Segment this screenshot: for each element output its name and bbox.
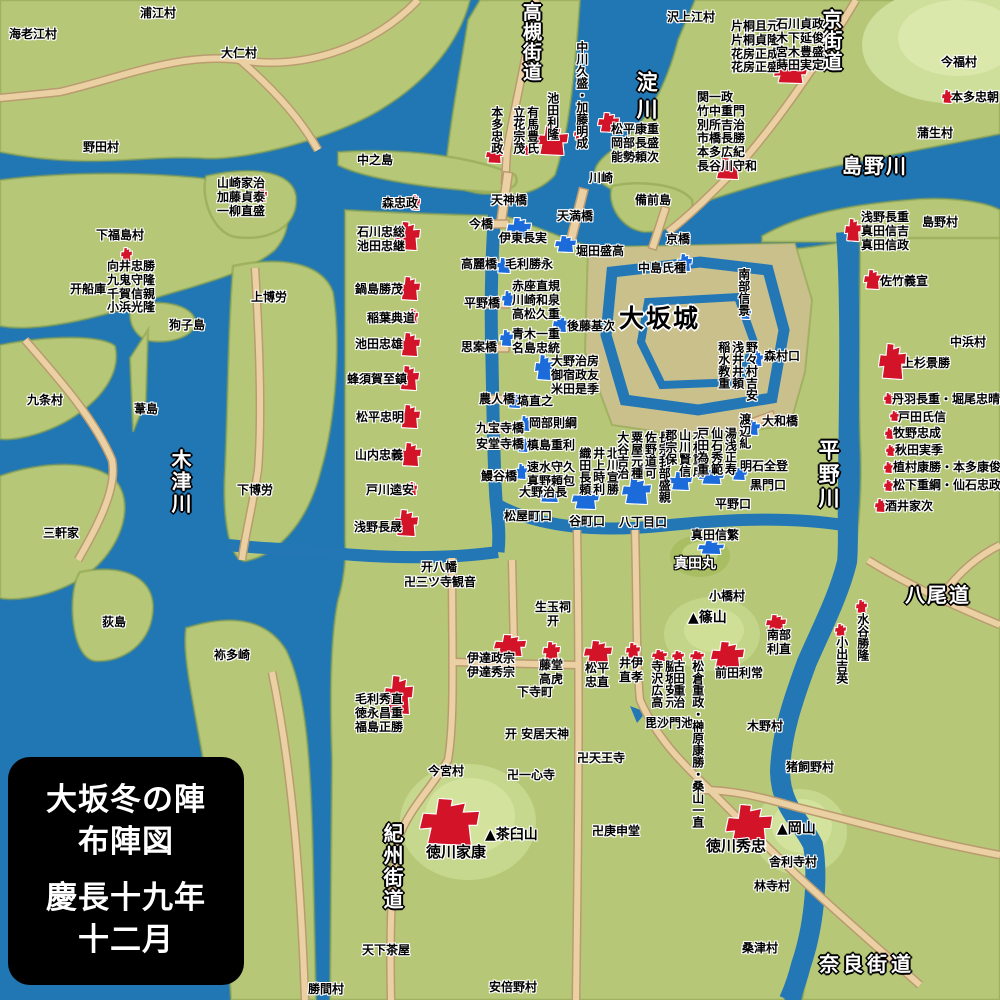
east-camp-label: 蜂須賀至鎮	[347, 373, 407, 387]
west-camp-label: 真田信繁	[691, 529, 739, 543]
landmark-label: ▲岡山	[777, 821, 816, 837]
route-or-river-label: 紀州街道	[380, 823, 403, 911]
east-camp-label: 石川貞政木下延俊宮木豊盛蒔田実定	[776, 18, 824, 73]
village-label: 葦島	[134, 403, 158, 417]
landmark-label: 卍天王寺	[577, 752, 625, 766]
bridge-label: 鰻谷橋	[481, 470, 517, 484]
village-label: 木野村	[747, 720, 783, 734]
west-camp-label: 堀田盛高	[576, 245, 624, 259]
bridge-label: 今橋	[469, 218, 493, 232]
landmark-label: ▲茶臼山	[485, 827, 538, 843]
east-camp-label: 松下重綱・仙石忠政	[893, 479, 1000, 493]
route-or-river-label: 島野川	[842, 155, 908, 178]
east-camp-marker	[420, 799, 479, 845]
village-label: 猪飼野村	[786, 761, 834, 775]
east-camp-label: 片桐且元片桐貞隆花房正成花房正盛	[731, 20, 779, 75]
east-camp-label: 有馬豊氏立花宗茂	[511, 106, 539, 154]
east-camp-marker-shape	[864, 270, 881, 289]
west-camp-label: 南部信景	[736, 268, 750, 316]
east-camp-marker	[884, 480, 893, 491]
osaka-castle	[585, 243, 812, 438]
west-camp-marker	[698, 541, 724, 554]
east-camp-label: 稲葉典道	[367, 312, 415, 326]
east-camp-label: 毛利秀直徳永昌重福島正勝	[355, 693, 403, 734]
east-camp-marker-shape	[420, 799, 479, 845]
route-or-river-label: 八尾道	[905, 584, 971, 607]
east-camp-label: 酒井家次	[885, 500, 933, 514]
east-camp-marker-shape	[884, 480, 893, 491]
east-camp-marker	[864, 270, 881, 289]
gate-label: 谷町口	[569, 515, 605, 529]
village-label: 備前島	[635, 194, 671, 208]
east-camp-label: 山崎家治加藤貞泰一柳直盛	[217, 177, 265, 218]
west-camp-label: 槙島重利	[527, 439, 575, 453]
east-camp-marker	[400, 443, 421, 466]
east-camp-label: 徳川秀忠	[706, 838, 766, 855]
bridge-label: 天神橋	[491, 194, 527, 208]
east-camp-marker-shape	[835, 624, 846, 636]
bridge-label: 平野橋	[464, 297, 500, 311]
east-camp-label: 池田利隆	[545, 92, 559, 140]
east-camp-label: 浅野長晟	[354, 521, 402, 535]
east-camp-label: 本多忠政	[489, 106, 503, 154]
east-camp-label: 古田重治	[671, 660, 685, 708]
village-label: 下福島村	[96, 229, 144, 243]
bridge-label: 大和橋	[762, 415, 798, 429]
gate-label: 松屋町口	[504, 510, 552, 524]
east-camp-label: 牧野忠成	[893, 427, 941, 441]
village-label: 海老江村	[9, 28, 57, 42]
route-or-river-label: 木津川	[168, 449, 191, 515]
bridge-label: 九宝寺橋	[476, 422, 524, 436]
landmark-label: 开船庫	[70, 283, 106, 297]
east-camp-label: 南部利直	[767, 629, 791, 657]
west-camp-label: 後藤基次	[567, 320, 615, 334]
sanadamaru-label: 真田丸	[674, 556, 716, 572]
gate-label: 黒門口	[750, 479, 786, 493]
bridge-label: 京橋	[666, 233, 690, 247]
east-camp-marker-shape	[845, 219, 861, 241]
village-label: 川崎	[589, 172, 613, 186]
legend-title-line2: 布陣図	[78, 822, 174, 864]
east-camp-label: 浅野長重真田信吉真田信政	[861, 211, 909, 252]
west-camp-marker-shape	[555, 236, 576, 252]
west-camp-marker	[516, 464, 527, 479]
east-camp-label: 伊達政宗伊達秀宗	[467, 652, 515, 680]
east-camp-marker-shape	[711, 642, 744, 669]
east-camp-label: 植村康勝・本多康俊	[893, 461, 1000, 475]
west-camp-label: 長宗我部盛親佐野道可粟屋元種大谷吉治	[615, 431, 670, 503]
village-label: 沢上江村	[667, 11, 715, 25]
west-camp-label: 大野治長	[519, 486, 567, 500]
route-or-river-label: 奈良街道	[819, 953, 915, 976]
village-label: 袮多崎	[214, 649, 250, 663]
village-label: 林寺村	[754, 880, 790, 894]
east-camp-label: 戸田氏信	[898, 411, 946, 425]
village-label: 狗子島	[169, 319, 205, 333]
west-camp-label: 毛利勝永	[505, 258, 553, 272]
gate-label: 八丁目口	[619, 516, 667, 530]
village-label: 野田村	[83, 141, 119, 155]
route-or-river-label: 高槻街道	[519, 2, 541, 82]
village-label: 舎利寺村	[769, 856, 817, 870]
landmark-label: 开八幡	[421, 561, 457, 575]
east-camp-label: 丹羽長重・堀尾忠晴	[892, 393, 1000, 407]
east-camp-label: 中川久盛・加藤明成	[574, 41, 588, 149]
village-label: 安倍野村	[489, 981, 537, 995]
east-camp-marker-shape	[884, 462, 893, 473]
landmark-label: 毘沙門池	[645, 717, 693, 731]
village-label: 大仁村	[221, 47, 257, 61]
bridge-label: 天満橋	[557, 210, 593, 224]
west-camp-marker-shape	[516, 464, 527, 479]
east-camp-label: 松平康重岡部長盛能勢頼次	[611, 123, 659, 164]
west-camp-label: 中島氏種	[638, 262, 686, 276]
west-camp-label: 岡部則綱	[529, 417, 577, 431]
village-label: 三軒家	[43, 527, 79, 541]
east-camp-marker	[711, 642, 744, 669]
village-label: 下寺町	[517, 686, 553, 700]
bridge-label: 安堂寺橋	[476, 438, 524, 452]
osaka-winter-siege-map: 大坂冬の陣 布陣図 慶長十九年 十二月 高槻街道淀川京街道島野川木津川平野川八尾…	[0, 0, 1000, 1000]
west-camp-label: 大野治房御宿政友米田是季	[551, 355, 599, 396]
village-label: 下博労	[237, 484, 273, 498]
legend-date-line1: 慶長十九年	[46, 878, 206, 920]
east-camp-marker	[884, 462, 893, 473]
east-camp-label: 藤堂高虎	[539, 659, 563, 687]
west-camp-label: 赤座直規川崎和泉高松久重	[512, 280, 560, 321]
east-camp-label: 石川忠総池田忠継	[357, 226, 405, 254]
east-camp-label: 向井忠勝九鬼守隆千賀信親小浜光隆	[107, 260, 155, 315]
village-label: 今宮村	[428, 765, 464, 779]
landmark-label: 卍庚申堂	[592, 825, 640, 839]
village-label: 中之島	[357, 154, 393, 168]
village-label: 島野村	[922, 216, 958, 230]
east-camp-label: 秋田実季	[895, 444, 943, 458]
gate-label: 森村口	[764, 350, 800, 364]
west-camp-label: 青木一重名島忠統	[512, 328, 560, 356]
east-camp-label: 戸川逵安	[366, 484, 414, 498]
east-camp-label: 森忠政	[382, 197, 418, 211]
village-label: 天下茶屋	[362, 944, 410, 958]
west-camp-label: 湯浅正寿仙石秀範戸田為重	[695, 427, 736, 475]
east-camp-marker	[835, 624, 846, 636]
east-camp-marker-shape	[400, 443, 421, 466]
map-legend: 大坂冬の陣 布陣図 慶長十九年 十二月	[8, 757, 244, 985]
east-camp-label: 松平忠直	[585, 662, 609, 690]
landmark-label: 开 安居天神	[505, 728, 569, 742]
east-camp-label: 井伊直孝	[619, 657, 643, 685]
west-camp-label: 渡辺糺	[737, 413, 751, 449]
village-label: 蒲生村	[917, 127, 953, 141]
east-camp-marker	[845, 219, 861, 241]
landmark-label: 卍三ツ寺観音	[404, 576, 476, 590]
east-camp-label: 鍋島勝茂	[355, 283, 403, 297]
east-camp-label: 水谷勝隆	[855, 613, 869, 661]
west-camp-label: 明石全登	[740, 460, 788, 474]
landmark-label: 生玉祠 开	[535, 601, 571, 629]
east-camp-label: 徳川家康	[426, 844, 486, 861]
west-camp-label: 野々村吉安浅井井頼稲水教重	[716, 341, 757, 401]
village-label: 浦江村	[140, 7, 176, 21]
east-camp-label: 松平忠明	[356, 411, 404, 425]
legend-date-line2: 十二月	[78, 920, 174, 962]
village-label: 今福村	[941, 56, 977, 70]
route-or-river-label: 平野川	[816, 439, 840, 511]
east-camp-label: 小出吉英	[834, 636, 848, 684]
route-or-river-label: 淀川	[634, 71, 658, 125]
village-label: 桑津村	[742, 942, 778, 956]
east-camp-label: 松倉重政・榊原康勝・桑山一直	[690, 660, 704, 828]
east-camp-marker	[886, 445, 895, 456]
west-camp-label: 塙直之	[517, 395, 553, 409]
legend-title-line1: 大坂冬の陣	[46, 780, 206, 822]
east-camp-label: 前田利常	[715, 667, 763, 681]
east-camp-marker	[856, 600, 867, 613]
village-label: 上博労	[251, 291, 287, 305]
village-label: 勝間村	[308, 983, 344, 997]
gate-label: 平野口	[715, 498, 751, 512]
village-label: 小橋村	[709, 590, 745, 604]
east-camp-marker-shape	[886, 445, 895, 456]
east-camp-label: 佐竹義宣	[880, 275, 928, 289]
osaka-castle-label: 大坂城	[619, 305, 700, 334]
village-label: 中浜村	[950, 336, 986, 350]
landmark-label: ▲篠山	[688, 610, 727, 626]
east-camp-label: 山内忠義	[355, 449, 403, 463]
west-camp-label: 伊東長実	[499, 232, 547, 246]
village-label: 九条村	[27, 394, 63, 408]
east-camp-marker-shape	[856, 600, 867, 613]
east-camp-label: 池田忠雄	[355, 338, 403, 352]
bridge-label: 思案橋	[461, 341, 497, 355]
village-label: 荻島	[102, 616, 126, 630]
east-camp-label: 本多忠朝	[951, 91, 999, 105]
bridge-label: 農人橋	[479, 393, 515, 407]
east-camp-label: 上杉景勝	[902, 357, 950, 371]
landmark-label: 卍一心寺	[507, 769, 555, 783]
west-camp-label: 北川宣勝井上時利織田長頼	[577, 447, 618, 495]
west-camp-marker	[555, 236, 576, 252]
east-camp-label: 関一政竹中重門別所吉治市橋長勝本多広紀長谷川守和	[697, 91, 757, 174]
west-camp-marker-shape	[698, 541, 724, 554]
bridge-label: 高麗橋	[461, 258, 497, 272]
